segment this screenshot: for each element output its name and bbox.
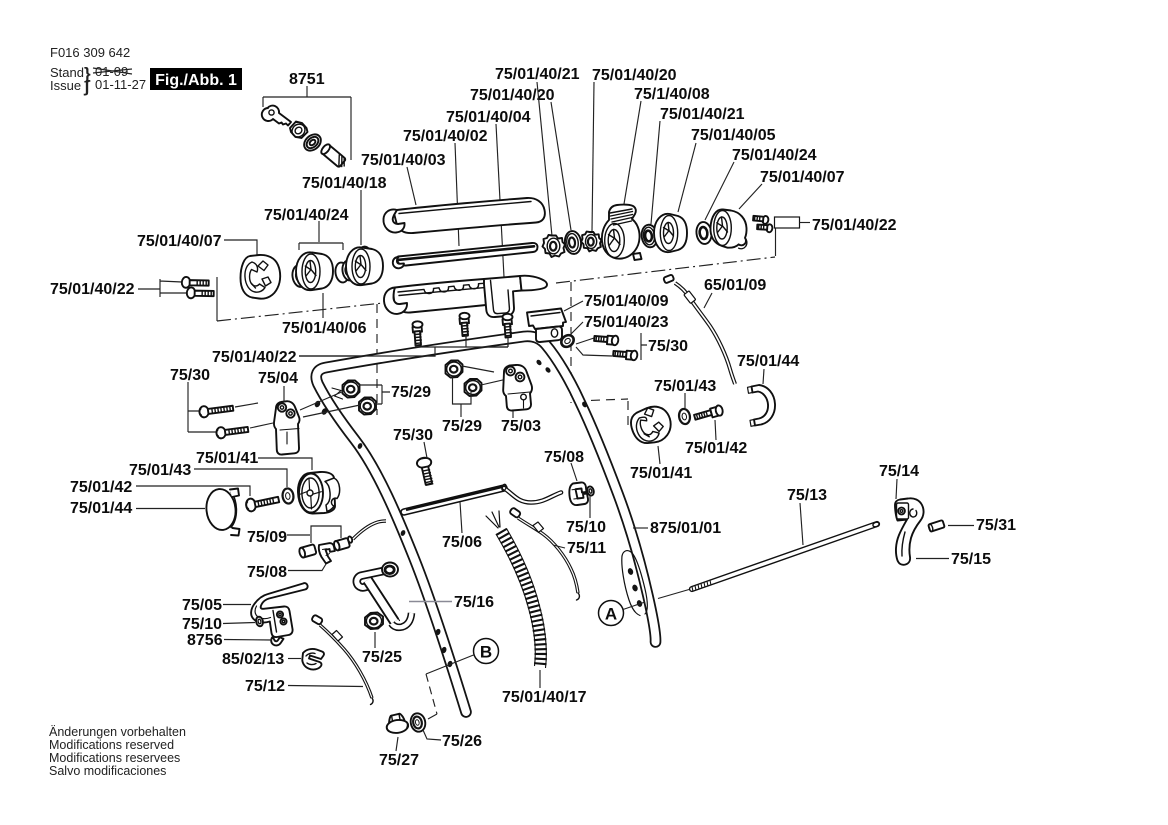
- svg-text:75/01/40/23: 75/01/40/23: [584, 314, 669, 331]
- svg-text:75/01/40/20: 75/01/40/20: [470, 87, 555, 104]
- svg-text:75/15: 75/15: [951, 551, 991, 568]
- svg-text:75/10: 75/10: [566, 519, 606, 536]
- svg-text:75/01/44: 75/01/44: [737, 353, 799, 370]
- svg-text:75/30: 75/30: [170, 367, 210, 384]
- svg-text:75/01/40/03: 75/01/40/03: [361, 152, 446, 169]
- svg-text:75/01/40/22: 75/01/40/22: [50, 281, 135, 298]
- svg-text:75/29: 75/29: [391, 384, 431, 401]
- svg-text:75/01/40/02: 75/01/40/02: [403, 128, 488, 145]
- svg-text:Änderungen vorbehalten: Änderungen vorbehalten: [49, 725, 186, 739]
- svg-text:75/01/40/07: 75/01/40/07: [137, 233, 222, 250]
- svg-text:75/13: 75/13: [787, 487, 827, 504]
- svg-text:A: A: [605, 605, 617, 624]
- svg-text:75/03: 75/03: [501, 418, 541, 435]
- svg-text:75/04: 75/04: [258, 370, 298, 387]
- svg-text:75/01/40/21: 75/01/40/21: [660, 106, 745, 123]
- svg-text:75/01/42: 75/01/42: [70, 479, 132, 496]
- svg-text:75/09: 75/09: [247, 529, 287, 546]
- svg-text:75/29: 75/29: [442, 418, 482, 435]
- svg-text:75/01/40/09: 75/01/40/09: [584, 293, 669, 310]
- svg-text:75/01/40/24: 75/01/40/24: [732, 147, 817, 164]
- svg-text:75/01/40/17: 75/01/40/17: [502, 689, 587, 706]
- svg-text:75/01/40/22: 75/01/40/22: [812, 217, 897, 234]
- svg-text:75/01/43: 75/01/43: [654, 378, 716, 395]
- svg-text:75/26: 75/26: [442, 733, 482, 750]
- svg-text:75/30: 75/30: [393, 427, 433, 444]
- svg-text:Salvo modificaciones: Salvo modificaciones: [49, 764, 166, 778]
- svg-text:01-11-27: 01-11-27: [95, 77, 146, 92]
- svg-text:B: B: [480, 643, 492, 662]
- svg-text:75/01/40/04: 75/01/40/04: [446, 109, 531, 126]
- svg-text:F016 309 642: F016 309 642: [50, 45, 130, 60]
- svg-text:Fig./Abb. 1: Fig./Abb. 1: [155, 72, 237, 89]
- svg-text:75/1/40/08: 75/1/40/08: [634, 86, 710, 103]
- svg-text:75/01/41: 75/01/41: [196, 450, 258, 467]
- svg-text:75/01/44: 75/01/44: [70, 500, 132, 517]
- svg-text:75/01/40/06: 75/01/40/06: [282, 320, 367, 337]
- svg-text:875/01/01: 875/01/01: [650, 520, 721, 537]
- svg-text:75/10: 75/10: [182, 616, 222, 633]
- svg-text:75/01/42: 75/01/42: [685, 440, 747, 457]
- svg-text:75/01/40/22: 75/01/40/22: [212, 349, 297, 366]
- svg-text:Issue: Issue: [50, 78, 81, 93]
- svg-text:Modifications reservees: Modifications reservees: [49, 751, 180, 765]
- svg-text:Modifications reserved: Modifications reserved: [49, 738, 174, 752]
- svg-text:75/05: 75/05: [182, 597, 222, 614]
- svg-text:75/08: 75/08: [247, 564, 287, 581]
- svg-text:75/01/43: 75/01/43: [129, 462, 191, 479]
- svg-text:75/01/40/24: 75/01/40/24: [264, 207, 349, 224]
- svg-text:75/27: 75/27: [379, 752, 419, 769]
- svg-text:8751: 8751: [289, 71, 325, 88]
- svg-text:75/11: 75/11: [567, 540, 606, 557]
- svg-text:75/01/40/18: 75/01/40/18: [302, 175, 387, 192]
- svg-text:75/08: 75/08: [544, 449, 584, 466]
- svg-text:75/31: 75/31: [976, 517, 1016, 534]
- svg-text:75/16: 75/16: [454, 594, 494, 611]
- svg-text:75/06: 75/06: [442, 534, 482, 551]
- svg-text:65/01/09: 65/01/09: [704, 277, 766, 294]
- svg-text:8756: 8756: [187, 632, 223, 649]
- svg-text:75/25: 75/25: [362, 649, 402, 666]
- svg-text:85/02/13: 85/02/13: [222, 651, 284, 668]
- svg-text:75/01/40/21: 75/01/40/21: [495, 66, 580, 83]
- svg-text:75/01/41: 75/01/41: [630, 465, 692, 482]
- svg-text:75/30: 75/30: [648, 338, 688, 355]
- svg-text:75/14: 75/14: [879, 463, 919, 480]
- svg-text:75/01/40/20: 75/01/40/20: [592, 67, 677, 84]
- svg-text:75/01/40/07: 75/01/40/07: [760, 169, 845, 186]
- svg-text:75/12: 75/12: [245, 678, 285, 695]
- svg-text:75/01/40/05: 75/01/40/05: [691, 127, 776, 144]
